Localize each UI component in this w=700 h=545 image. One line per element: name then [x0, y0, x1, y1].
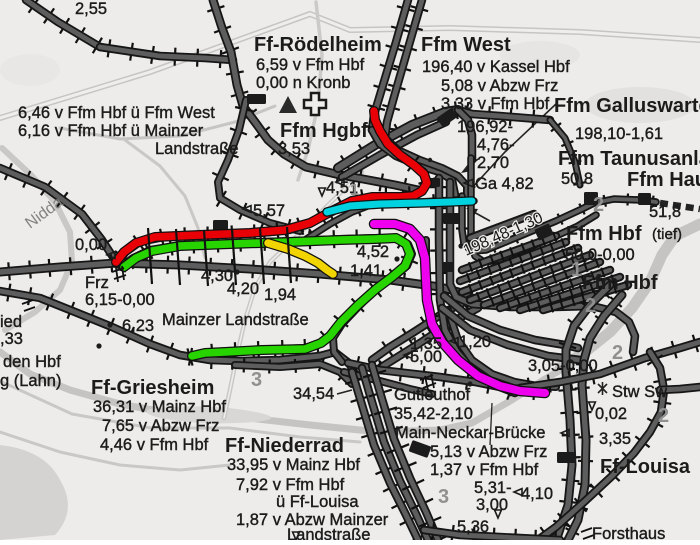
svg-text:6,16 v Ffm Hbf ü Mainzer: 6,16 v Ffm Hbf ü Mainzer — [18, 122, 204, 140]
svg-text:33,95 v Mainz Hbf: 33,95 v Mainz Hbf — [227, 456, 360, 474]
svg-text:3: 3 — [251, 369, 262, 391]
svg-text:6,46 v Ffm Hbf ü Ffm West: 6,46 v Ffm Hbf ü Ffm West — [18, 104, 215, 122]
svg-text:ied: ied — [0, 313, 22, 331]
svg-text:6,59 v Ffm Hbf: 6,59 v Ffm Hbf — [256, 56, 365, 74]
svg-text:2: 2 — [612, 342, 623, 364]
svg-text:Ffm West: Ffm West — [421, 34, 511, 56]
svg-text:5,36: 5,36 — [457, 518, 489, 536]
svg-text:Ff-Griesheim: Ff-Griesheim — [91, 377, 214, 399]
svg-text:3: 3 — [438, 486, 449, 508]
svg-text:36,31 v Mainz Hbf: 36,31 v Mainz Hbf — [93, 398, 226, 416]
svg-text:Ga 4,82: Ga 4,82 — [475, 175, 534, 193]
svg-text:Ff-Louisa: Ff-Louisa — [600, 456, 691, 478]
svg-text:1: 1 — [571, 259, 582, 281]
svg-text:2: 2 — [658, 405, 669, 427]
svg-text:5,00: 5,00 — [410, 348, 442, 366]
svg-text:4,20: 4,20 — [227, 280, 259, 298]
svg-text:34,54: 34,54 — [293, 385, 334, 403]
svg-text:2,70: 2,70 — [477, 154, 509, 172]
svg-text:6,15-0,00: 6,15-0,00 — [85, 291, 155, 309]
svg-text:Ff-Niederrad: Ff-Niederrad — [225, 435, 344, 457]
svg-text:Main-Neckar-Brücke: Main-Neckar-Brücke — [395, 424, 545, 442]
svg-text:50,8: 50,8 — [561, 170, 593, 188]
svg-text:Frz: Frz — [85, 274, 109, 292]
svg-text:1,41: 1,41 — [350, 262, 382, 280]
svg-text:Stw Sw: Stw Sw — [612, 383, 667, 401]
svg-text:0,00: 0,00 — [75, 236, 107, 254]
svg-text:Gutleuthof: Gutleuthof — [394, 386, 471, 404]
svg-text:3,53: 3,53 — [278, 140, 310, 158]
svg-text:5,31-: 5,31- — [474, 479, 512, 497]
svg-text:ü Ff-Louisa: ü Ff-Louisa — [276, 493, 359, 511]
svg-text:Landstraße: Landstraße — [155, 140, 238, 158]
svg-text:0,02: 0,02 — [595, 405, 627, 423]
svg-text:4,52: 4,52 — [357, 243, 389, 261]
svg-text:g (Lahn): g (Lahn) — [0, 372, 61, 390]
svg-text:1: 1 — [350, 182, 359, 199]
svg-text:3,05-0,00: 3,05-0,00 — [528, 357, 598, 375]
svg-text:Ffm Hbf: Ffm Hbf — [566, 223, 642, 245]
svg-text:Landstraße: Landstraße — [287, 526, 370, 540]
svg-text:4,76-: 4,76- — [477, 136, 515, 154]
svg-text:5,08 v Abzw Frz: 5,08 v Abzw Frz — [441, 77, 558, 95]
svg-text:Ffm Galluswarte: Ffm Galluswarte — [554, 95, 700, 117]
svg-text:1,37 v Ffm Hbf: 1,37 v Ffm Hbf — [430, 461, 539, 479]
svg-text:3,00: 3,00 — [476, 496, 508, 514]
svg-text:Ff-Rödelheim: Ff-Rödelheim — [254, 34, 382, 56]
svg-text:Forsthaus: Forsthaus — [592, 525, 665, 540]
svg-text:51,8: 51,8 — [649, 203, 681, 221]
svg-text:7,65 v Abzw Frz: 7,65 v Abzw Frz — [102, 417, 219, 435]
svg-text:Mainzer Landstraße: Mainzer Landstraße — [162, 311, 309, 329]
svg-text:2,55: 2,55 — [75, 0, 107, 18]
svg-text:Ffm Hgbf: Ffm Hgbf — [280, 120, 368, 142]
svg-text:196,92-: 196,92- — [457, 118, 513, 136]
svg-text:5,57: 5,57 — [253, 202, 285, 220]
svg-text:0,00 n Kronb: 0,00 n Kronb — [256, 74, 351, 92]
svg-text:3,33 v Ffm Hbf: 3,33 v Ffm Hbf — [441, 95, 550, 113]
svg-text:Ffm Hauptwache: Ffm Hauptwache — [627, 169, 700, 191]
svg-text:1,94: 1,94 — [264, 286, 296, 304]
svg-text:198,10-1,61: 198,10-1,61 — [575, 125, 663, 143]
svg-text:Ffm Hbf: Ffm Hbf — [582, 272, 658, 294]
svg-text:6,23: 6,23 — [122, 317, 154, 335]
svg-text:,33: ,33 — [0, 330, 23, 348]
svg-text:196,40 v Kassel Hbf: 196,40 v Kassel Hbf — [422, 58, 570, 76]
svg-text:2: 2 — [585, 295, 596, 317]
svg-text:Ffm Taunusanlage: Ffm Taunusanlage — [558, 148, 700, 170]
svg-text:4,46 v Ffm Hbf: 4,46 v Ffm Hbf — [100, 436, 209, 454]
svg-text:1,20: 1,20 — [459, 333, 491, 351]
svg-text:2: 2 — [593, 194, 604, 216]
svg-text:3,35: 3,35 — [599, 430, 631, 448]
svg-text:35,42-2,10: 35,42-2,10 — [394, 405, 473, 423]
svg-text:5,13 v Abzw Frz: 5,13 v Abzw Frz — [430, 443, 547, 461]
svg-text:(tief): (tief) — [652, 226, 682, 243]
svg-text:4,10: 4,10 — [521, 485, 553, 503]
svg-text:7,92 v Ffm Hbf: 7,92 v Ffm Hbf — [236, 476, 345, 494]
svg-text:den Hbf: den Hbf — [3, 353, 61, 371]
